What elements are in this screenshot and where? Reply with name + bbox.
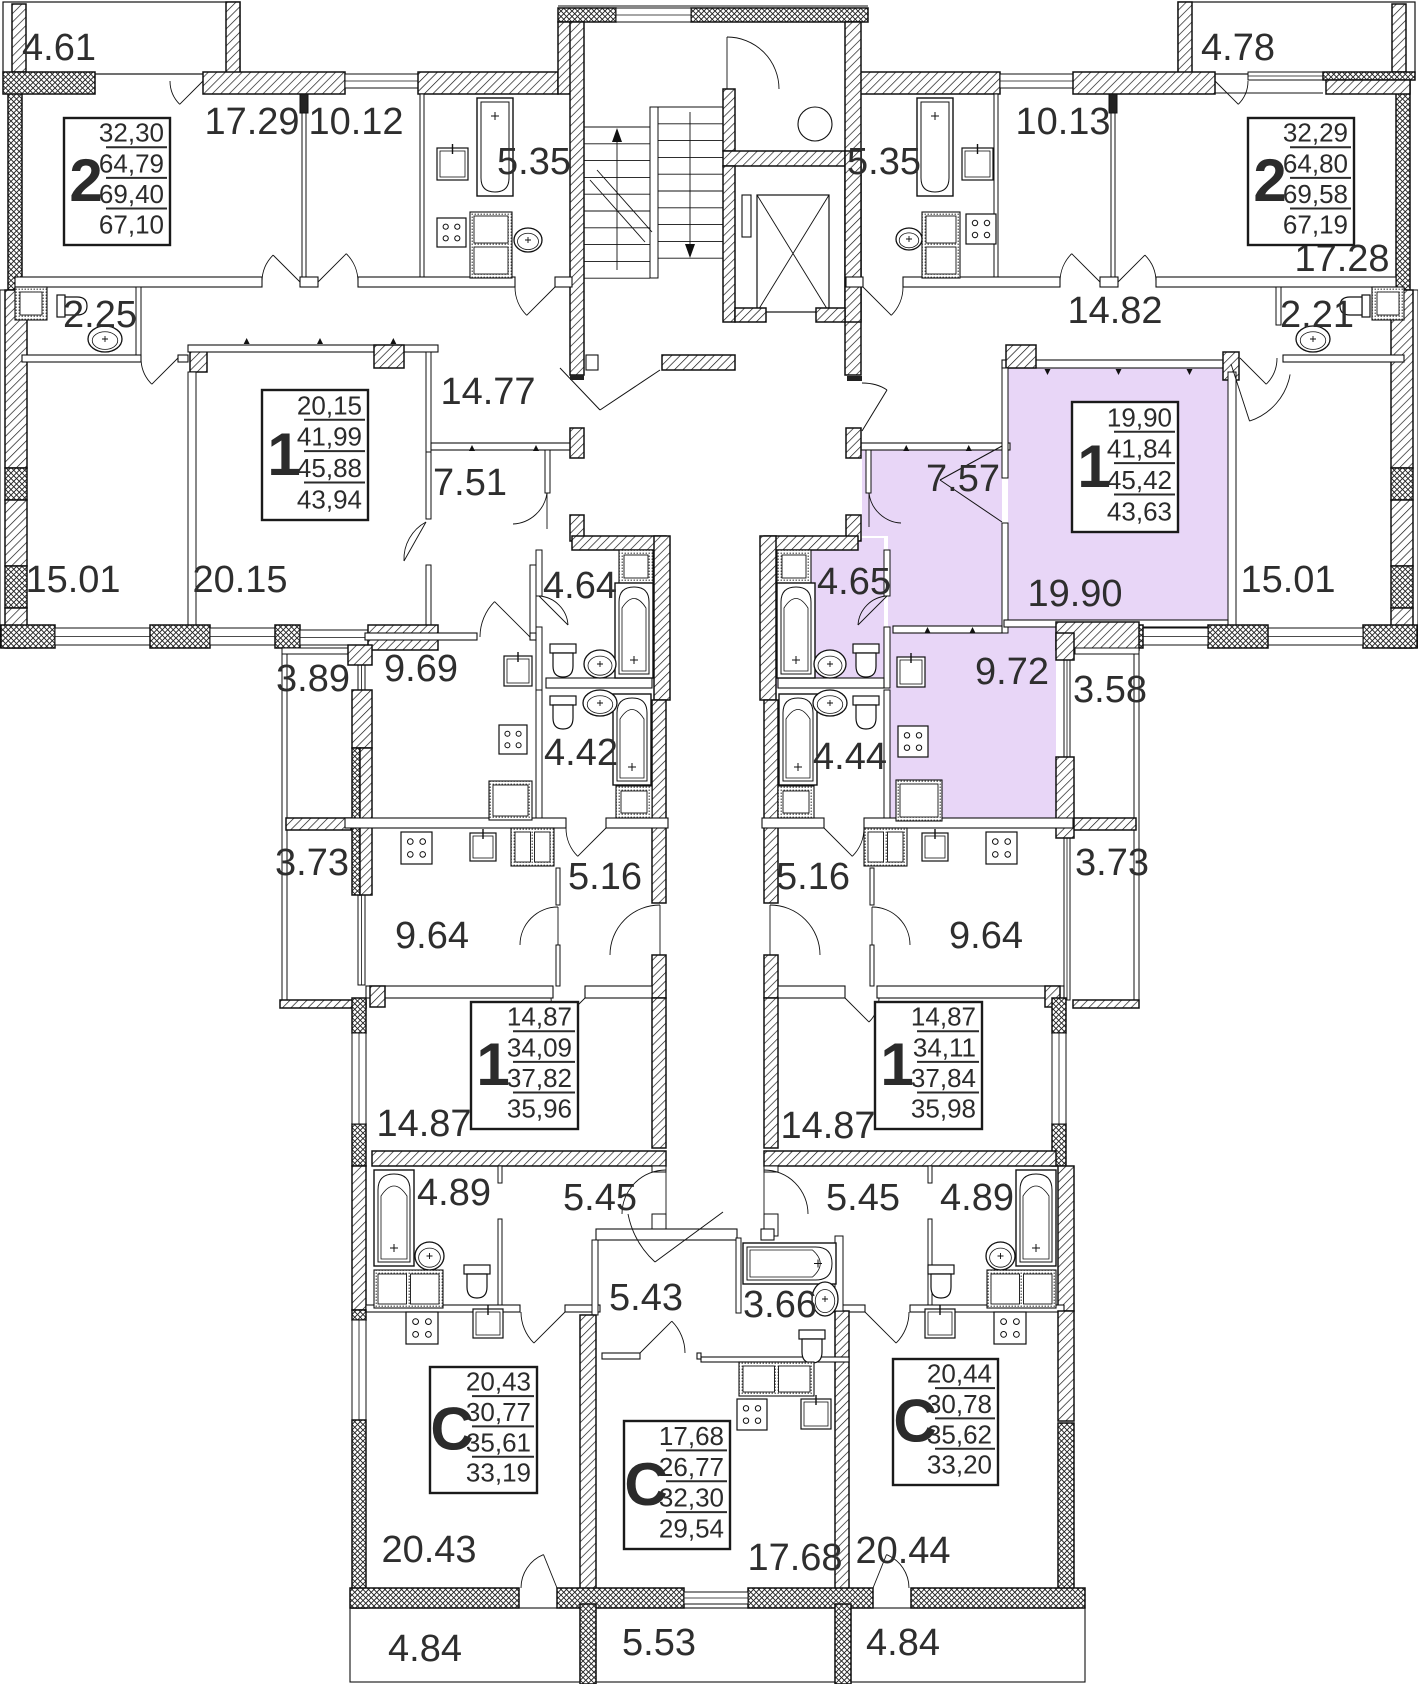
svg-text:15.01: 15.01 [1240, 559, 1335, 601]
svg-text:43,94: 43,94 [297, 484, 362, 514]
svg-text:3.73: 3.73 [275, 842, 349, 884]
svg-text:2: 2 [1253, 147, 1286, 214]
svg-text:69,58: 69,58 [1283, 179, 1348, 209]
svg-text:9.64: 9.64 [395, 915, 469, 957]
svg-text:2.21: 2.21 [1280, 294, 1354, 336]
svg-text:2.25: 2.25 [63, 294, 137, 336]
svg-text:32,30: 32,30 [99, 118, 164, 148]
svg-text:4.84: 4.84 [388, 1628, 462, 1670]
svg-text:43,63: 43,63 [1107, 496, 1172, 526]
svg-text:5.53: 5.53 [622, 1622, 696, 1664]
svg-text:20.43: 20.43 [381, 1529, 476, 1571]
svg-text:32,29: 32,29 [1283, 118, 1348, 148]
svg-text:5.35: 5.35 [847, 141, 921, 183]
svg-text:34,09: 34,09 [507, 1032, 572, 1062]
svg-text:34,11: 34,11 [913, 1032, 976, 1062]
svg-text:67,10: 67,10 [99, 210, 164, 240]
svg-text:14.87: 14.87 [780, 1105, 875, 1147]
svg-text:10.12: 10.12 [308, 101, 403, 143]
svg-text:30,78: 30,78 [927, 1389, 992, 1419]
svg-text:5.45: 5.45 [563, 1177, 637, 1219]
svg-text:35,98: 35,98 [911, 1094, 976, 1124]
svg-text:20.15: 20.15 [192, 559, 287, 601]
svg-text:26,77: 26,77 [659, 1452, 724, 1482]
svg-text:4.65: 4.65 [817, 561, 891, 603]
svg-text:64,79: 64,79 [99, 148, 164, 178]
svg-text:37,82: 37,82 [507, 1063, 572, 1093]
svg-text:41,99: 41,99 [297, 422, 362, 452]
svg-text:67,19: 67,19 [1283, 210, 1348, 240]
svg-text:3.73: 3.73 [1075, 842, 1149, 884]
svg-text:69,40: 69,40 [99, 179, 164, 209]
svg-text:4.89: 4.89 [417, 1172, 491, 1214]
svg-text:64,80: 64,80 [1283, 148, 1348, 178]
svg-text:2: 2 [69, 147, 102, 214]
svg-text:5.45: 5.45 [826, 1177, 900, 1219]
svg-text:9.72: 9.72 [975, 651, 1049, 693]
svg-text:17.29: 17.29 [204, 101, 299, 143]
svg-text:20,43: 20,43 [466, 1367, 531, 1397]
svg-text:4.89: 4.89 [940, 1177, 1014, 1219]
svg-text:14.87: 14.87 [376, 1103, 471, 1145]
svg-text:4.61: 4.61 [22, 27, 96, 69]
svg-text:35,61: 35,61 [466, 1427, 531, 1457]
svg-text:45,42: 45,42 [1107, 465, 1172, 495]
svg-text:17,68: 17,68 [659, 1421, 724, 1451]
svg-text:14.77: 14.77 [440, 371, 535, 413]
svg-text:5.35: 5.35 [497, 141, 571, 183]
svg-text:7.51: 7.51 [433, 462, 507, 504]
svg-text:1: 1 [1077, 433, 1110, 500]
svg-text:1: 1 [880, 1031, 913, 1098]
svg-text:7.57: 7.57 [926, 458, 1000, 500]
svg-text:29,54: 29,54 [659, 1514, 724, 1544]
svg-text:5.16: 5.16 [568, 856, 642, 898]
svg-text:4.44: 4.44 [813, 736, 887, 778]
svg-text:19,90: 19,90 [1107, 402, 1172, 432]
svg-text:37,84: 37,84 [911, 1063, 976, 1093]
svg-text:9.69: 9.69 [384, 648, 458, 690]
svg-text:33,19: 33,19 [466, 1458, 531, 1488]
svg-text:5.43: 5.43 [609, 1277, 683, 1319]
svg-text:3.66: 3.66 [743, 1284, 817, 1326]
svg-text:3.89: 3.89 [276, 658, 350, 700]
svg-text:14,87: 14,87 [911, 1002, 976, 1032]
svg-text:41,84: 41,84 [1107, 434, 1172, 464]
svg-text:9.64: 9.64 [949, 915, 1023, 957]
svg-text:3.58: 3.58 [1073, 669, 1147, 711]
svg-text:4.64: 4.64 [543, 565, 617, 607]
svg-text:14.82: 14.82 [1067, 290, 1162, 332]
svg-text:4.42: 4.42 [544, 732, 618, 774]
svg-text:4.78: 4.78 [1201, 27, 1275, 69]
svg-text:20,15: 20,15 [297, 390, 362, 420]
svg-text:5.16: 5.16 [776, 856, 850, 898]
svg-text:20,44: 20,44 [927, 1359, 992, 1389]
svg-text:15.01: 15.01 [25, 559, 120, 601]
svg-text:1: 1 [476, 1031, 509, 1098]
svg-text:17.68: 17.68 [747, 1537, 842, 1579]
svg-text:4.84: 4.84 [866, 1622, 940, 1664]
svg-text:45,88: 45,88 [297, 453, 362, 483]
svg-text:32,30: 32,30 [659, 1483, 724, 1513]
svg-text:14,87: 14,87 [507, 1002, 572, 1032]
svg-text:33,20: 33,20 [927, 1450, 992, 1480]
svg-text:30,77: 30,77 [466, 1397, 531, 1427]
svg-text:20.44: 20.44 [855, 1530, 950, 1572]
svg-text:35,96: 35,96 [507, 1094, 572, 1124]
svg-text:1: 1 [267, 421, 300, 488]
svg-text:35,62: 35,62 [927, 1419, 992, 1449]
svg-text:10.13: 10.13 [1015, 101, 1110, 143]
svg-text:19.90: 19.90 [1027, 573, 1122, 615]
